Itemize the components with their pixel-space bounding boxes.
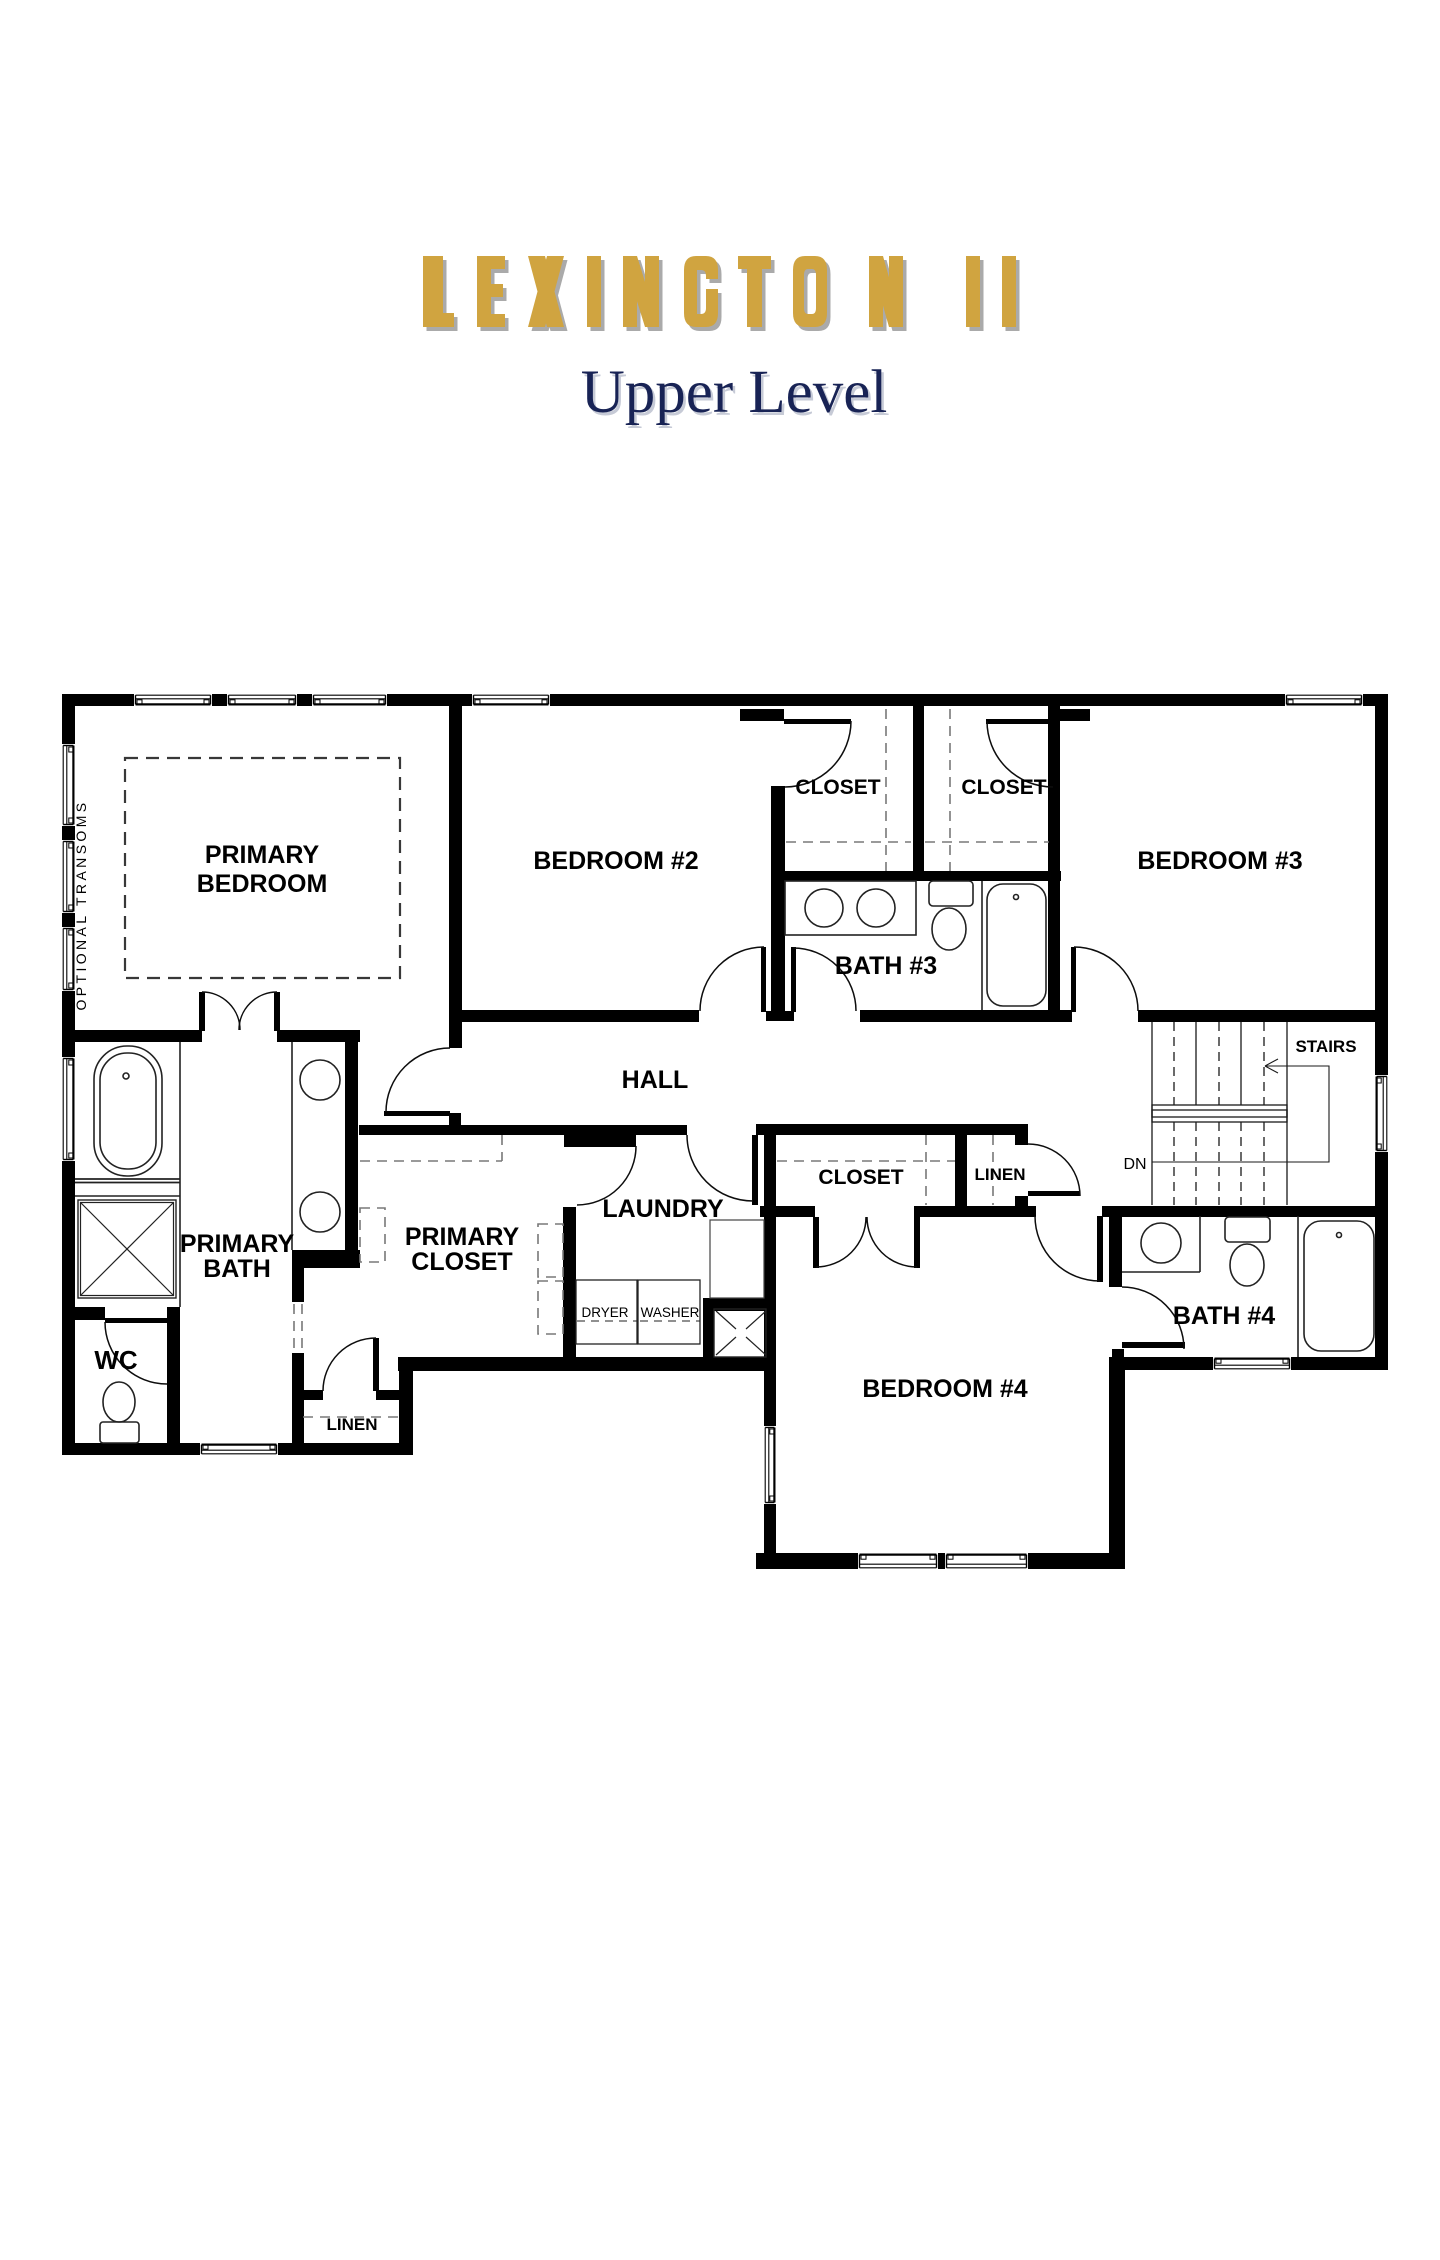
svg-text:DRYER: DRYER	[581, 1305, 628, 1320]
svg-text:WASHER: WASHER	[641, 1305, 700, 1320]
svg-text:BEDROOM #4: BEDROOM #4	[862, 1375, 1027, 1403]
svg-text:DN: DN	[1123, 1156, 1146, 1173]
svg-text:PRIMARY: PRIMARY	[205, 841, 320, 869]
svg-text:OPTIONAL TRANSOMS: OPTIONAL TRANSOMS	[73, 799, 89, 1010]
svg-text:PRIMARY: PRIMARY	[180, 1230, 295, 1258]
svg-text:LINEN: LINEN	[327, 1415, 378, 1434]
svg-text:BATH: BATH	[203, 1255, 271, 1283]
svg-text:BATH #3: BATH #3	[835, 952, 937, 980]
svg-text:LINEN: LINEN	[975, 1165, 1026, 1184]
svg-text:BATH #4: BATH #4	[1173, 1302, 1275, 1330]
svg-text:WC: WC	[94, 1345, 138, 1375]
svg-text:BEDROOM #2: BEDROOM #2	[533, 847, 698, 875]
svg-text:HALL: HALL	[622, 1066, 689, 1094]
svg-text:CLOSET: CLOSET	[961, 776, 1046, 799]
svg-text:BEDROOM #3: BEDROOM #3	[1137, 847, 1302, 875]
svg-text:PRIMARY: PRIMARY	[405, 1223, 520, 1251]
svg-text:CLOSET: CLOSET	[795, 776, 880, 799]
svg-text:BEDROOM: BEDROOM	[197, 870, 328, 898]
svg-text:CLOSET: CLOSET	[818, 1166, 903, 1189]
svg-text:Upper Level: Upper Level	[581, 359, 888, 426]
svg-text:STAIRS: STAIRS	[1295, 1037, 1356, 1056]
svg-text:CLOSET: CLOSET	[411, 1248, 512, 1276]
svg-text:LAUNDRY: LAUNDRY	[602, 1195, 724, 1223]
